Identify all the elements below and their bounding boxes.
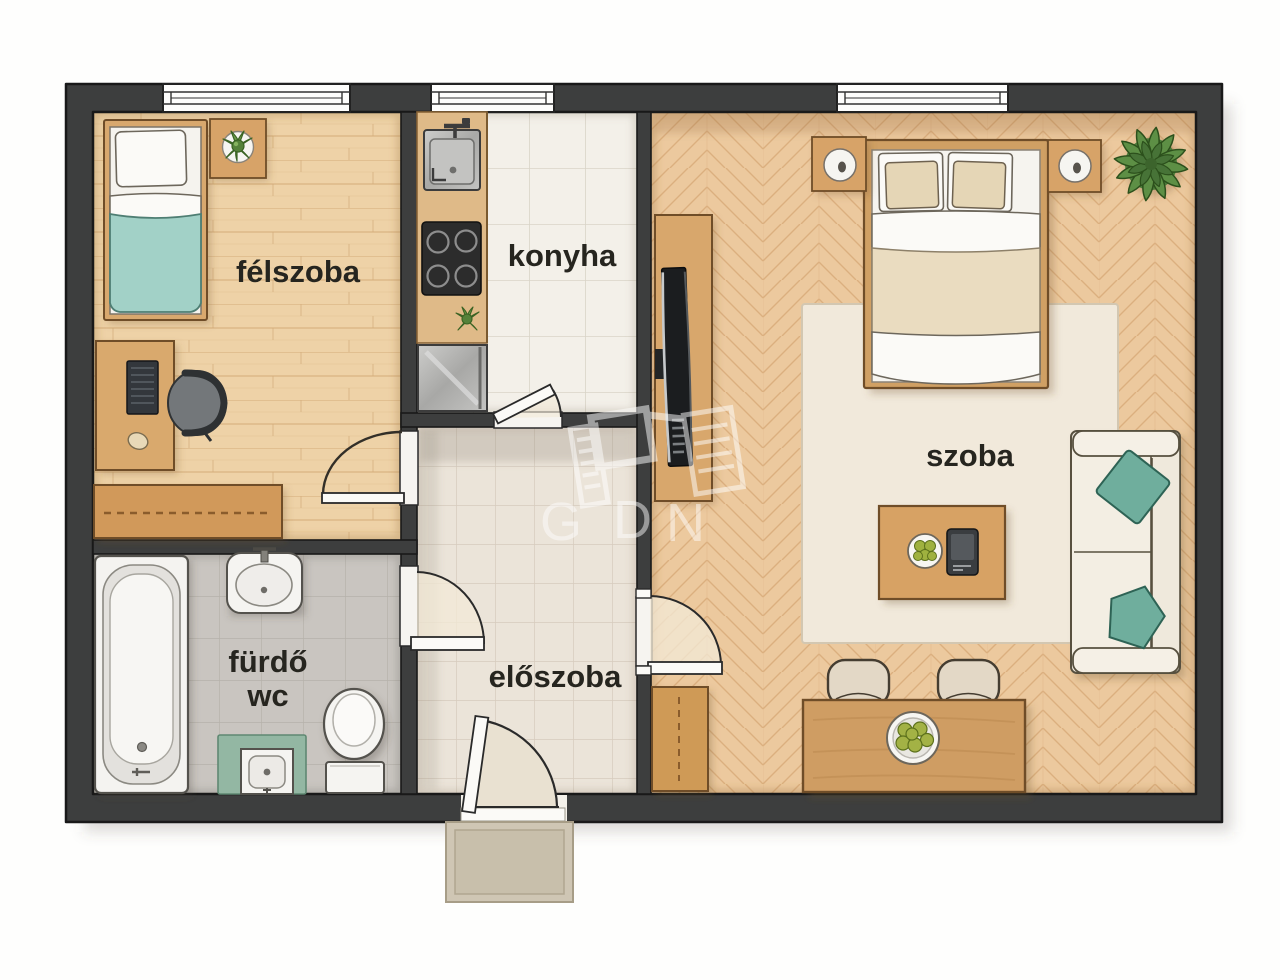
svg-text:szoba: szoba [926,438,1015,473]
svg-text:wc: wc [246,678,288,713]
svg-text:G: G [540,492,582,552]
svg-text:konyha: konyha [508,238,617,273]
svg-text:félszoba: félszoba [236,254,361,289]
svg-text:D: D [613,490,652,550]
svg-text:N: N [666,493,705,553]
svg-text:fürdő: fürdő [228,644,307,679]
svg-text:előszoba: előszoba [489,659,622,694]
